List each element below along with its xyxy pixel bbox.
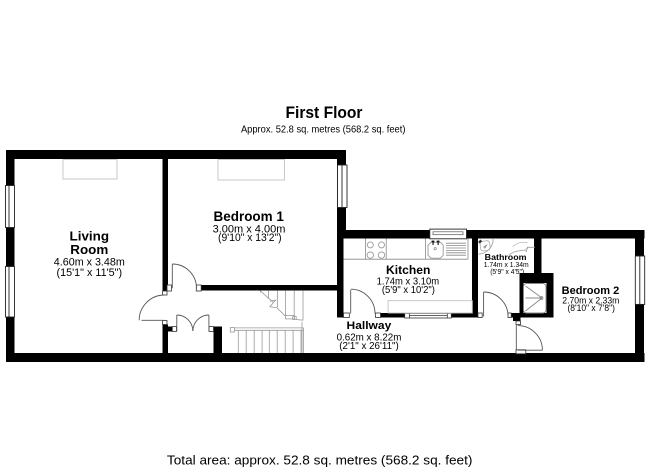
svg-text:Hallway: Hallway (347, 320, 393, 332)
svg-text:(2'1" x 26'11"): (2'1" x 26'11") (339, 341, 399, 352)
svg-text:Bathroom: Bathroom (485, 252, 527, 262)
svg-text:(5'9" x 10'2"): (5'9" x 10'2") (382, 284, 435, 296)
svg-text:(15'1" x 11'5"): (15'1" x 11'5") (57, 267, 123, 279)
svg-text:(9'10" x 13'2"): (9'10" x 13'2") (218, 232, 282, 244)
svg-text:First Floor: First Floor (286, 103, 363, 122)
svg-text:(8'10" x 7'8"): (8'10" x 7'8") (567, 303, 615, 313)
svg-text:(5'9" x 4'5"): (5'9" x 4'5") (490, 269, 524, 276)
svg-text:Total area: approx. 52.8 sq. m: Total area: approx. 52.8 sq. metres (568… (167, 452, 473, 467)
svg-text:Bedroom 1: Bedroom 1 (214, 209, 285, 224)
svg-text:Approx. 52.8 sq. metres (568.2: Approx. 52.8 sq. metres (568.2 sq. feet) (241, 124, 406, 135)
svg-text:Room: Room (70, 242, 108, 257)
